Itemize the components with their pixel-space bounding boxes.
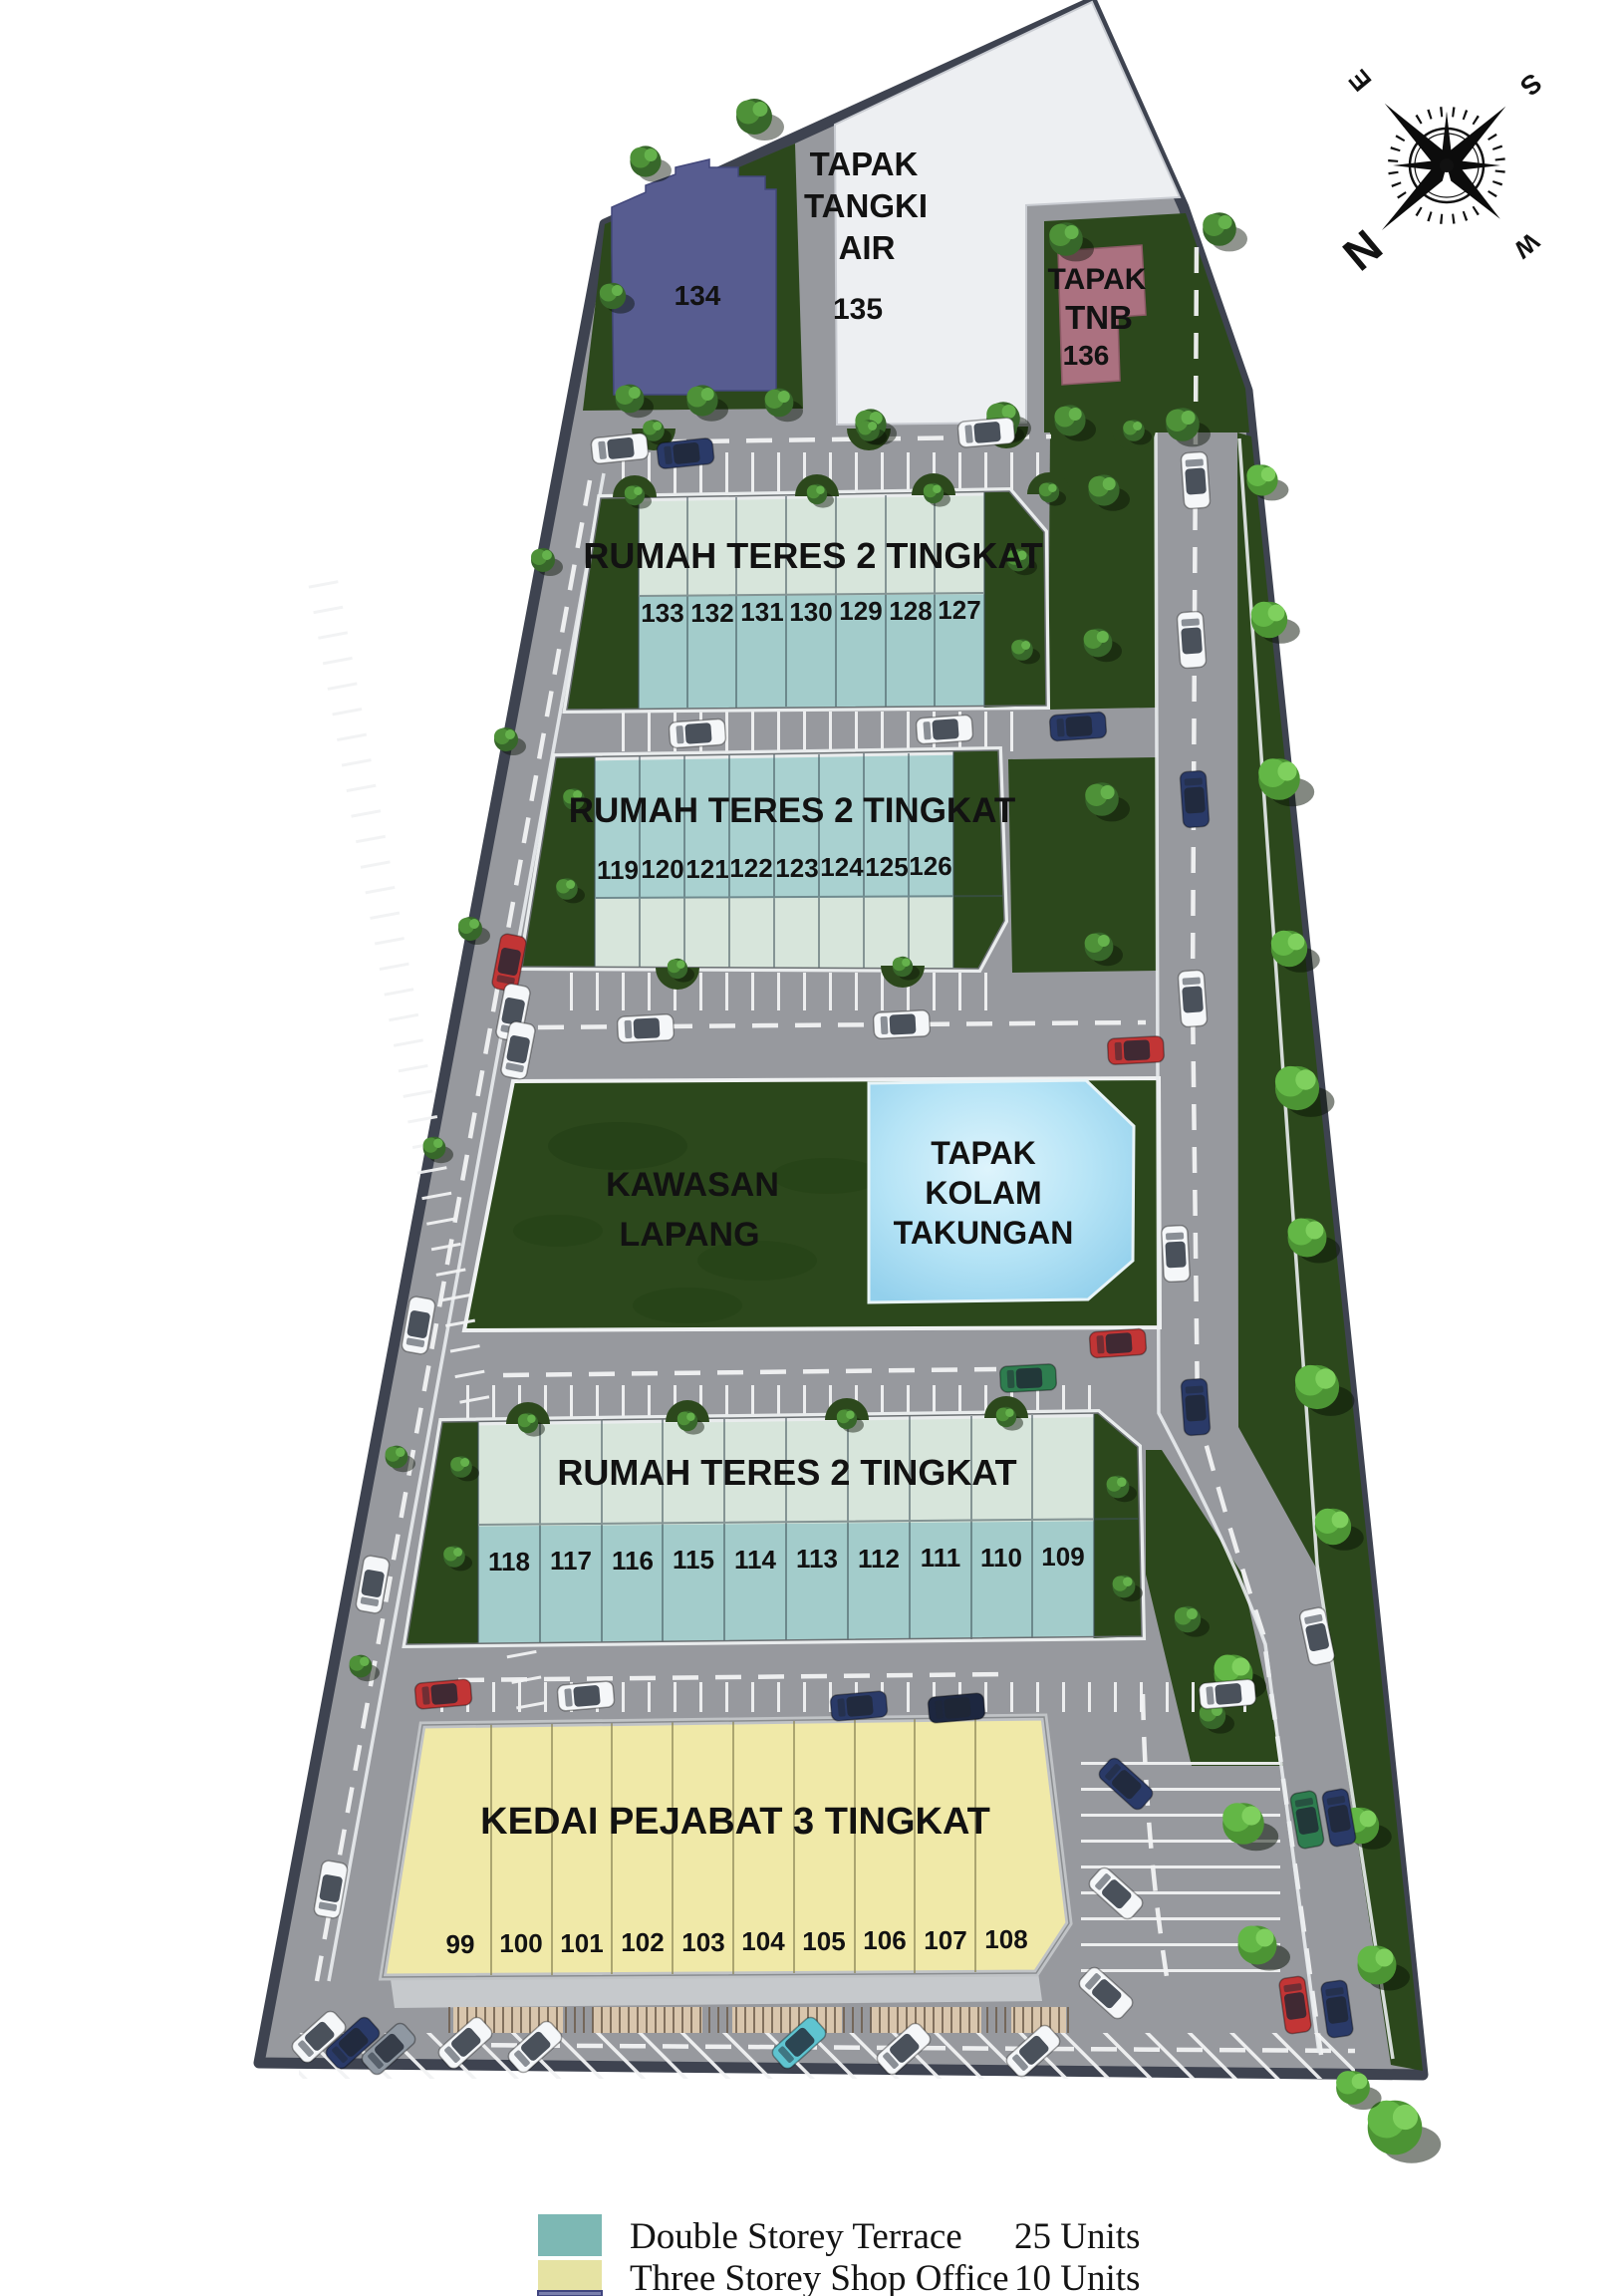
unit-label: 106 [863, 1925, 906, 1955]
site-plan-page: 134 TAPAK TANGKI AIR 135 TAPAK TNB 136 R… [0, 0, 1623, 2296]
right-verge-upper [1048, 429, 1157, 710]
row2-title: RUMAH TERES 2 TINGKAT [569, 791, 1016, 830]
pond-label-1: TAPAK [931, 1135, 1035, 1171]
shops-title: KEDAI PEJABAT 3 TINGKAT [480, 1801, 990, 1843]
unit-label: 125 [865, 852, 908, 882]
legend-swatch-partial [538, 2291, 602, 2296]
right-verge-mid [1008, 757, 1158, 973]
unit-label: 101 [560, 1928, 603, 1958]
legend-swatch-terrace [538, 2214, 602, 2256]
unit-label: 110 [980, 1543, 1022, 1573]
unit-label: 121 [685, 854, 728, 884]
row1-unit-numbers: 133 132 131 130 129 128 127 [641, 595, 980, 628]
unit-label: 117 [550, 1546, 592, 1576]
unit-label: 132 [690, 598, 733, 628]
unit-label: 130 [789, 597, 832, 627]
unit-label: 123 [775, 853, 818, 883]
unit-label: 104 [741, 1926, 785, 1956]
lot134-building [612, 159, 776, 395]
row3-title: RUMAH TERES 2 TINGKAT [557, 1452, 1016, 1493]
unit-label: 133 [641, 598, 683, 628]
tnb-number: 136 [1063, 340, 1110, 371]
unit-label: 105 [802, 1926, 845, 1956]
unit-label: 119 [597, 855, 639, 885]
legend-label-shop: Three Storey Shop Office [630, 2258, 1009, 2296]
unit-label: 131 [740, 597, 783, 627]
unit-label: 120 [641, 854, 683, 884]
unit-label: 107 [924, 1925, 966, 1955]
unit-label: 113 [796, 1544, 838, 1574]
compass-w: W [1508, 227, 1544, 264]
tnb-label-2: TNB [1065, 299, 1133, 336]
unit-label: 114 [734, 1545, 776, 1575]
unit-label: 112 [858, 1544, 900, 1574]
tank-number: 135 [833, 293, 883, 326]
legend-count-terrace: 25 Units [1014, 2216, 1140, 2257]
site-plan-image: 134 TAPAK TANGKI AIR 135 TAPAK TNB 136 R… [0, 0, 1623, 2296]
row2-unit-numbers: 119 120 121 122 123 124 125 126 [597, 851, 952, 885]
unit-label: 100 [499, 1928, 542, 1958]
legend-label-terrace: Double Storey Terrace [630, 2216, 962, 2257]
pond-label-2: KOLAM [925, 1175, 1041, 1211]
unit-label: 127 [938, 595, 980, 625]
lot134-label: 134 [675, 280, 721, 311]
unit-label: 118 [488, 1547, 530, 1577]
compass-e: E [1343, 64, 1378, 97]
unit-label: 126 [909, 851, 951, 881]
terrace-block-row3 [406, 1413, 1142, 1644]
unit-label: 128 [889, 596, 932, 626]
row1-title: RUMAH TERES 2 TINGKAT [583, 535, 1042, 576]
tank-label-1: TAPAK [810, 145, 919, 182]
legend: Double Storey Terrace 25 Units Three Sto… [538, 2214, 1140, 2296]
unit-label: 115 [673, 1545, 714, 1575]
unit-label: 108 [984, 1924, 1027, 1954]
open-area-label-1: KAWASAN [606, 1166, 779, 1204]
unit-label: 99 [446, 1929, 475, 1959]
legend-count-shop: 10 Units [1014, 2258, 1140, 2296]
tnb-label-1: TAPAK [1048, 263, 1147, 296]
compass-n: N [1333, 219, 1392, 280]
tank-label-3: AIR [839, 229, 896, 266]
unit-label: 124 [820, 852, 864, 882]
unit-label: 111 [921, 1543, 961, 1573]
unit-label: 109 [1041, 1542, 1084, 1572]
unit-label: 116 [612, 1546, 654, 1576]
compass-rose: N S E W [1320, 44, 1559, 283]
unit-label: 129 [839, 596, 882, 626]
pond-label-3: TAKUNGAN [894, 1215, 1074, 1251]
compass-s: S [1514, 67, 1547, 102]
tank-label-2: TANGKI [804, 187, 928, 224]
unit-label: 103 [681, 1927, 724, 1957]
unit-label: 122 [729, 853, 772, 883]
unit-label: 102 [621, 1927, 664, 1957]
open-area-label-2: LAPANG [619, 1216, 759, 1254]
